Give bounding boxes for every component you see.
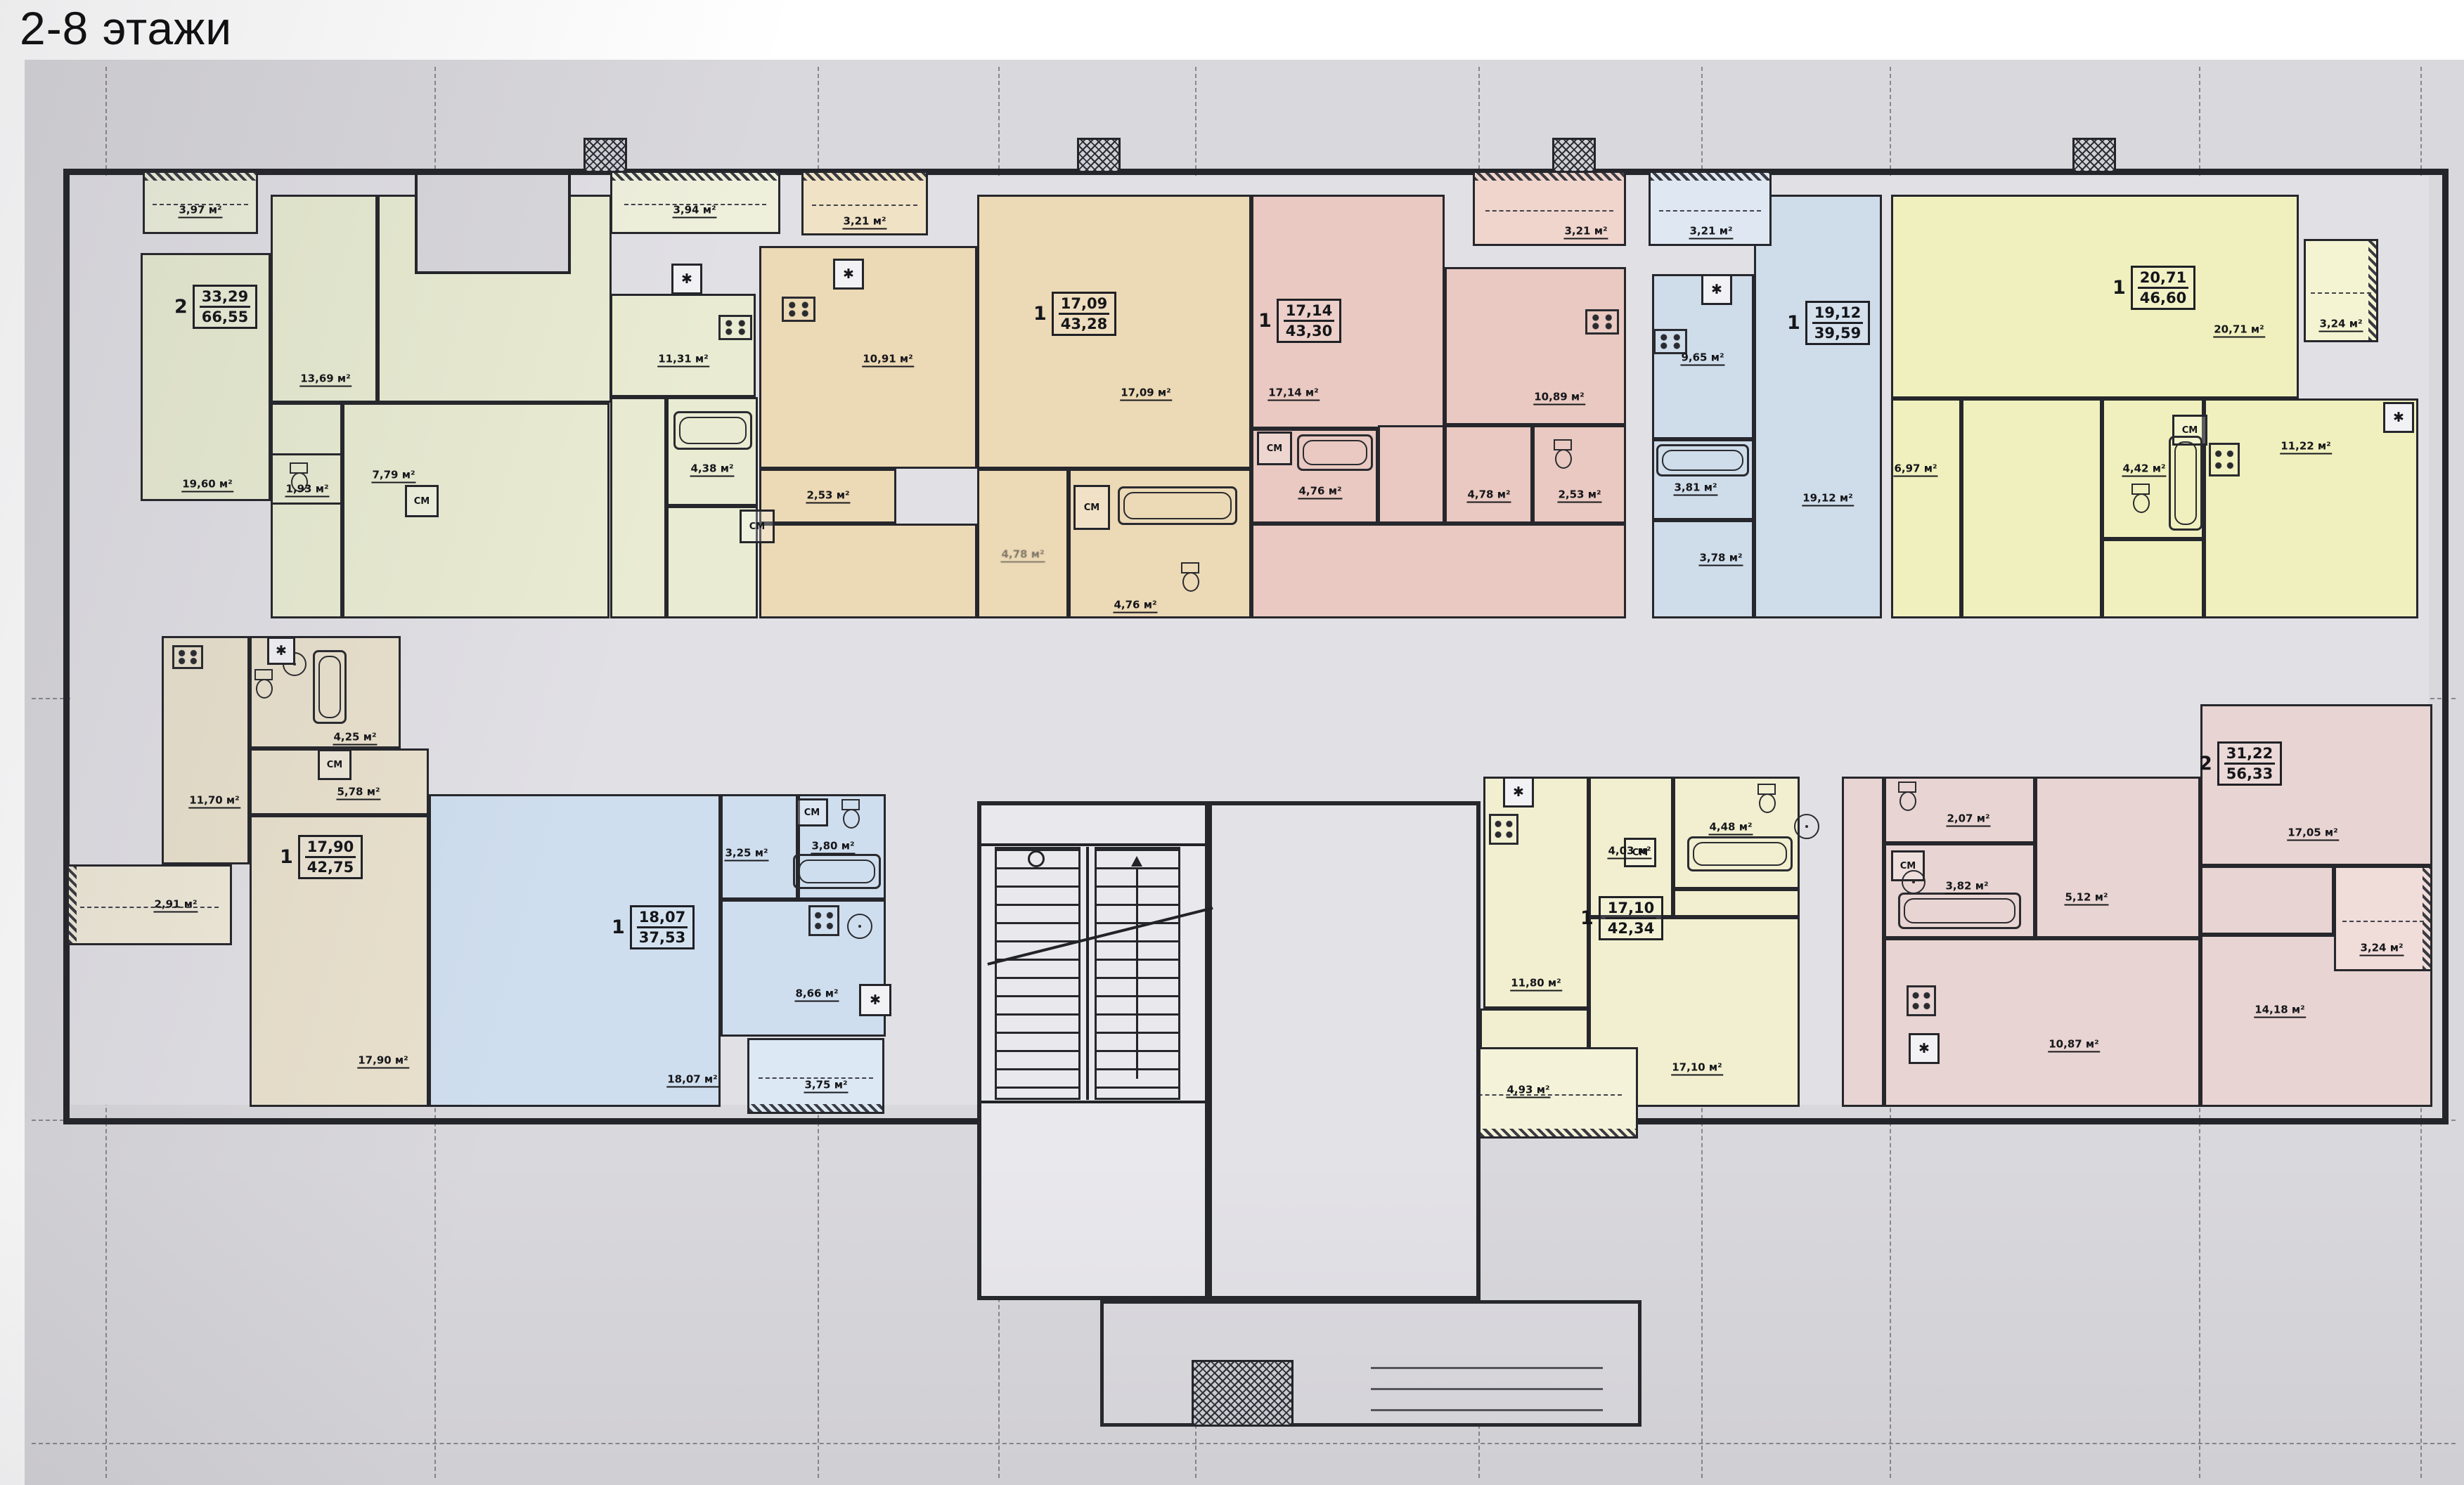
stairs-flight xyxy=(995,847,1081,1100)
area-label: 7,79 м² xyxy=(371,469,415,484)
tag-rooms: 1 xyxy=(280,846,293,868)
area-label: 9,65 м² xyxy=(1680,351,1724,366)
area-label: 17,10 м² xyxy=(1671,1061,1723,1076)
tag-total: 66,55 xyxy=(200,308,250,325)
area-label: 11,80 м² xyxy=(1510,977,1562,992)
apartment-tag-yellow: 1 20,7146,60 xyxy=(2113,266,2195,310)
tag-rooms: 2 xyxy=(174,296,188,318)
area-label: 2,07 м² xyxy=(1946,812,1990,827)
stairs-arrow-icon xyxy=(1131,856,1142,867)
area-label: 4,42 м² xyxy=(2122,462,2166,477)
area-label: 11,70 м² xyxy=(188,794,240,809)
tag-total: 43,28 xyxy=(1059,315,1109,332)
area-label: 3,80 м² xyxy=(811,840,855,855)
apartment-tag-blue: 1 19,1239,59 xyxy=(1787,301,1870,345)
area-label: 13,69 м² xyxy=(299,372,351,387)
tag-living: 20,71 xyxy=(2138,269,2188,289)
porch-step xyxy=(1371,1367,1603,1369)
area-label: 1,93 м² xyxy=(285,483,329,498)
area-label: 3,81 м² xyxy=(1673,481,1717,496)
area-label: 17,90 м² xyxy=(357,1054,409,1069)
tag-rooms: 1 xyxy=(2113,277,2126,299)
area-label: 4,25 м² xyxy=(333,731,377,746)
tag-living: 19,12 xyxy=(1812,304,1863,324)
area-label: 10,89 м² xyxy=(1533,391,1585,406)
tag-living: 31,22 xyxy=(2224,745,2275,765)
area-label: 3,97 м² xyxy=(178,204,222,219)
area-label: 3,94 м² xyxy=(672,204,716,219)
area-label: 17,14 м² xyxy=(1268,387,1320,401)
tag-rooms: 1 xyxy=(1033,303,1047,325)
area-label: 19,60 м² xyxy=(181,478,233,493)
area-label: 11,31 м² xyxy=(657,353,709,368)
tag-rooms: 1 xyxy=(1580,907,1594,929)
area-label: 2,53 м² xyxy=(806,489,850,504)
porch-step xyxy=(1371,1409,1603,1411)
apartment-tag-btan: 1 17,9042,75 xyxy=(280,835,363,879)
area-label: 4,48 м² xyxy=(1708,821,1753,836)
area-label: 4,38 м² xyxy=(690,462,734,477)
area-label: 4,76 м² xyxy=(1298,485,1342,500)
tag-living: 18,07 xyxy=(637,909,688,928)
lobby xyxy=(1208,801,1481,1300)
area-label: 14,18 м² xyxy=(2254,1004,2306,1018)
area-label: 10,91 м² xyxy=(862,353,914,368)
axis-line xyxy=(32,1443,2456,1444)
area-label: 8,66 м² xyxy=(794,987,839,1002)
area-label: 6,97 м² xyxy=(1893,462,1937,477)
area-label: 11,22 м² xyxy=(2280,440,2332,455)
apartment-tag-bblue: 1 18,0737,53 xyxy=(612,905,695,949)
stairs-stringer xyxy=(1086,847,1089,1100)
area-label: 2,91 м² xyxy=(153,898,198,913)
tag-living: 17,10 xyxy=(1606,900,1656,919)
stairs-landing xyxy=(981,1101,1205,1103)
stairs-landing xyxy=(981,843,1205,846)
tag-rooms: 1 xyxy=(612,916,625,938)
tag-rooms: 1 xyxy=(1787,312,1800,334)
tag-living: 17,90 xyxy=(305,838,356,858)
area-label: 5,78 м² xyxy=(336,786,380,800)
apartment-tag-tan: 1 17,0943,28 xyxy=(1033,292,1116,336)
apartment-tag-byellow: 1 17,1042,34 xyxy=(1580,896,1663,940)
area-label: 3,21 м² xyxy=(1563,225,1608,240)
area-label: 4,76 м² xyxy=(1113,599,1157,614)
apartment-tag-pink: 1 17,1443,30 xyxy=(1258,299,1341,343)
tag-living: 17,09 xyxy=(1059,295,1109,315)
tag-total: 42,34 xyxy=(1606,919,1656,937)
area-label: 4,78 м² xyxy=(1466,488,1511,503)
area-label: 17,05 м² xyxy=(2287,826,2339,841)
area-label: 3,75 м² xyxy=(804,1079,848,1094)
area-label: 3,82 м² xyxy=(1944,880,1989,895)
vent-stack-icon xyxy=(2072,138,2116,173)
entrance-porch xyxy=(1100,1300,1641,1427)
tag-rooms: 1 xyxy=(1258,310,1272,332)
tag-total: 46,60 xyxy=(2138,289,2188,306)
tag-total: 42,75 xyxy=(305,858,356,876)
area-label: 20,71 м² xyxy=(2213,323,2265,338)
apartment-tag-green: 2 33,2966,55 xyxy=(174,285,257,329)
tag-total: 43,30 xyxy=(1284,322,1334,339)
vent-stack-icon xyxy=(1077,138,1121,173)
area-label: 3,24 м² xyxy=(2359,942,2404,957)
vent-stack-icon xyxy=(583,138,627,173)
area-label: 19,12 м² xyxy=(1802,492,1854,507)
area-label: 3,24 м² xyxy=(2318,318,2363,332)
area-label: 4,03 м² xyxy=(1607,845,1651,860)
balcony-bblue xyxy=(747,1038,884,1114)
floor-plan-page: 2-8 этажи СМ СМ СМ СМ xyxy=(0,0,2464,1485)
area-label: 3,21 м² xyxy=(1689,225,1733,240)
tag-living: 33,29 xyxy=(200,288,250,308)
area-label: 17,09 м² xyxy=(1120,387,1172,401)
tag-total: 39,59 xyxy=(1812,324,1863,342)
area-label: 18,07 м² xyxy=(666,1073,718,1088)
stairs-arrow-line xyxy=(1136,868,1138,1079)
tag-total: 56,33 xyxy=(2224,765,2275,782)
vent-stack-icon xyxy=(1552,138,1596,173)
apartment-tag-bpink: 2 31,2256,33 xyxy=(2199,741,2282,786)
page-title: 2-8 этажи xyxy=(20,1,232,55)
area-label: 4,93 м² xyxy=(1506,1084,1550,1098)
porch-hatch xyxy=(1192,1360,1294,1427)
porch-step xyxy=(1371,1388,1603,1390)
balcony-btan xyxy=(67,864,232,945)
balcony-green-left xyxy=(143,171,258,234)
balcony-green-right xyxy=(610,171,780,234)
tag-rooms: 2 xyxy=(2199,753,2212,774)
tag-living: 17,14 xyxy=(1284,302,1334,322)
area-label: 2,53 м² xyxy=(1557,488,1601,503)
area-label: 4,78 м² xyxy=(1000,548,1045,563)
tag-total: 37,53 xyxy=(637,928,688,946)
area-label: 3,21 м² xyxy=(842,215,886,230)
area-label: 5,12 м² xyxy=(2064,891,2108,906)
area-label: 3,78 м² xyxy=(1698,552,1743,566)
area-label: 10,87 м² xyxy=(2048,1038,2100,1053)
stairs-start-icon xyxy=(1028,850,1045,867)
area-label: 3,25 м² xyxy=(724,847,768,862)
